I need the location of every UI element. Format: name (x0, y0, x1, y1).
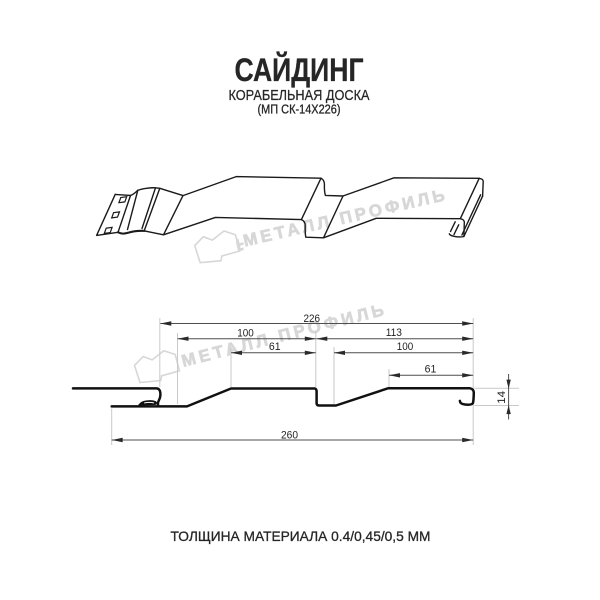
svg-text:САЙДИНГ: САЙДИНГ (235, 50, 364, 88)
svg-text:260: 260 (281, 429, 298, 441)
svg-text:61: 61 (425, 364, 437, 376)
svg-text:ТОЛЩИНА МАТЕРИАЛА 0.4/0,45/0,5: ТОЛЩИНА МАТЕРИАЛА 0.4/0,45/0,5 ММ (171, 528, 431, 544)
svg-text:61: 61 (269, 341, 281, 353)
svg-text:113: 113 (386, 327, 402, 339)
svg-text:100: 100 (397, 341, 414, 353)
svg-text:14: 14 (496, 391, 508, 404)
svg-text:КОРАБЕЛЬНАЯ ДОСКА: КОРАБЕЛЬНАЯ ДОСКА (229, 88, 370, 104)
svg-text:(МП СК-14Х226): (МП СК-14Х226) (258, 103, 341, 117)
svg-text:100: 100 (237, 327, 254, 339)
svg-text:МЕТАЛЛ ПРОФИЛЬ: МЕТАЛЛ ПРОФИЛЬ (180, 300, 386, 370)
svg-text:226: 226 (304, 313, 321, 325)
